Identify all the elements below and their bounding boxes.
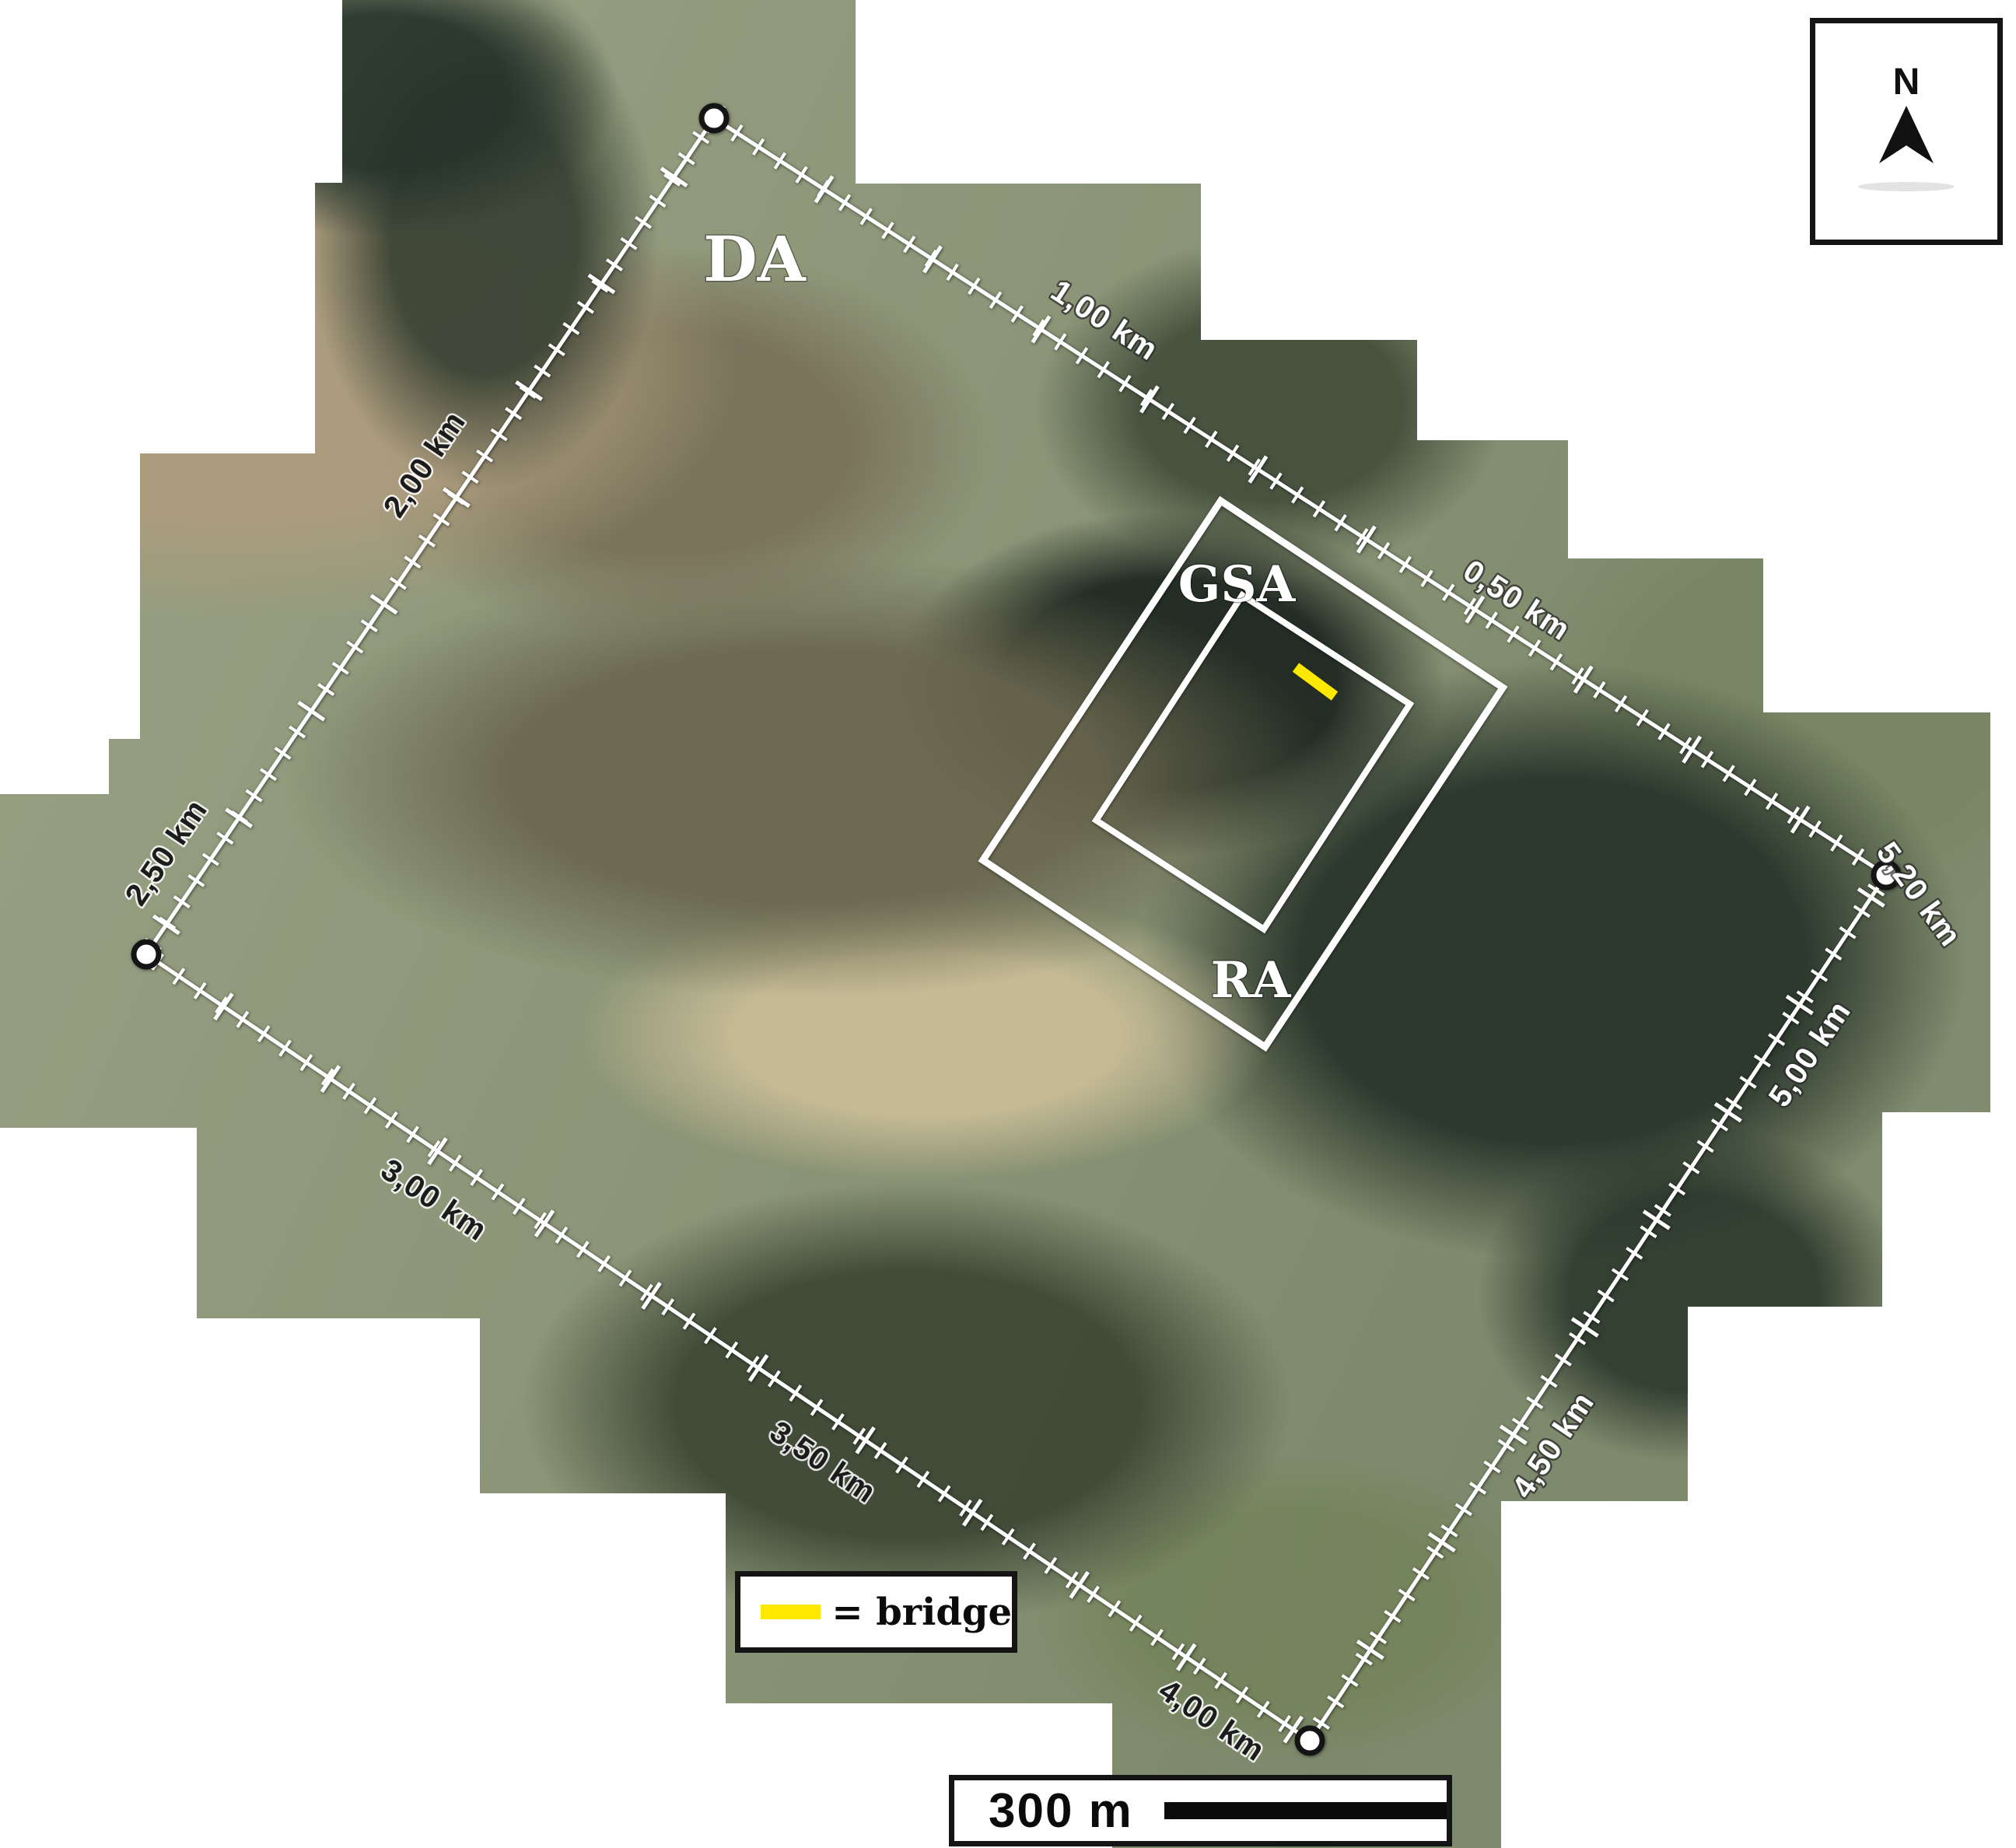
- region-label-ra: RA: [1211, 951, 1292, 1010]
- distance-label-7: 4,50 km: [1506, 1386, 1601, 1504]
- distance-label-9: 5,20 km: [1870, 836, 1968, 953]
- north-compass-panel: N: [1810, 18, 2003, 245]
- bridge-legend-swatch: [761, 1605, 821, 1619]
- vertex-marker-bottom: [1297, 1728, 1322, 1753]
- scale-bar-panel: 300 m: [949, 1775, 1452, 1846]
- region-label-gsa: GSA: [1178, 555, 1297, 614]
- bridge-legend-label: = bridge: [831, 1591, 1012, 1634]
- scale-bar-rule: [1164, 1802, 1447, 1819]
- vertex-marker-top: [702, 106, 726, 131]
- perimeter-minor-ticks: [146, 118, 1886, 1741]
- scale-bar-label: 300 m: [989, 1783, 1133, 1839]
- perimeter-line: [146, 118, 1886, 1741]
- distance-label-2: 2,00 km: [377, 405, 472, 523]
- bridge-legend-panel: = bridge: [735, 1571, 1017, 1653]
- north-arrow-icon: [1878, 106, 1934, 165]
- north-label: N: [1893, 64, 1920, 101]
- distance-labels: 1,00 km0,50 km2,00 km2,50 km3,00 km3,50 …: [119, 274, 1968, 1769]
- region-label-da: DA: [703, 222, 806, 296]
- study-area-map: DA GSA RA 1,00 km0,50 km2,00 km2,50 km3,…: [0, 0, 2016, 1848]
- distance-label-0: 1,00 km: [1045, 274, 1164, 368]
- distance-label-4: 3,00 km: [375, 1153, 493, 1248]
- bridge-mark: [1296, 667, 1335, 696]
- distance-label-6: 4,00 km: [1153, 1673, 1271, 1768]
- north-arrow-shadow: [1858, 182, 1955, 191]
- ra-zone-rectangle: [1096, 595, 1409, 929]
- survey-perimeter-path: [134, 106, 1899, 1753]
- distance-label-3: 2,50 km: [119, 793, 214, 912]
- vertex-marker-left: [134, 942, 159, 967]
- perimeter-major-ticks: [146, 118, 1886, 1741]
